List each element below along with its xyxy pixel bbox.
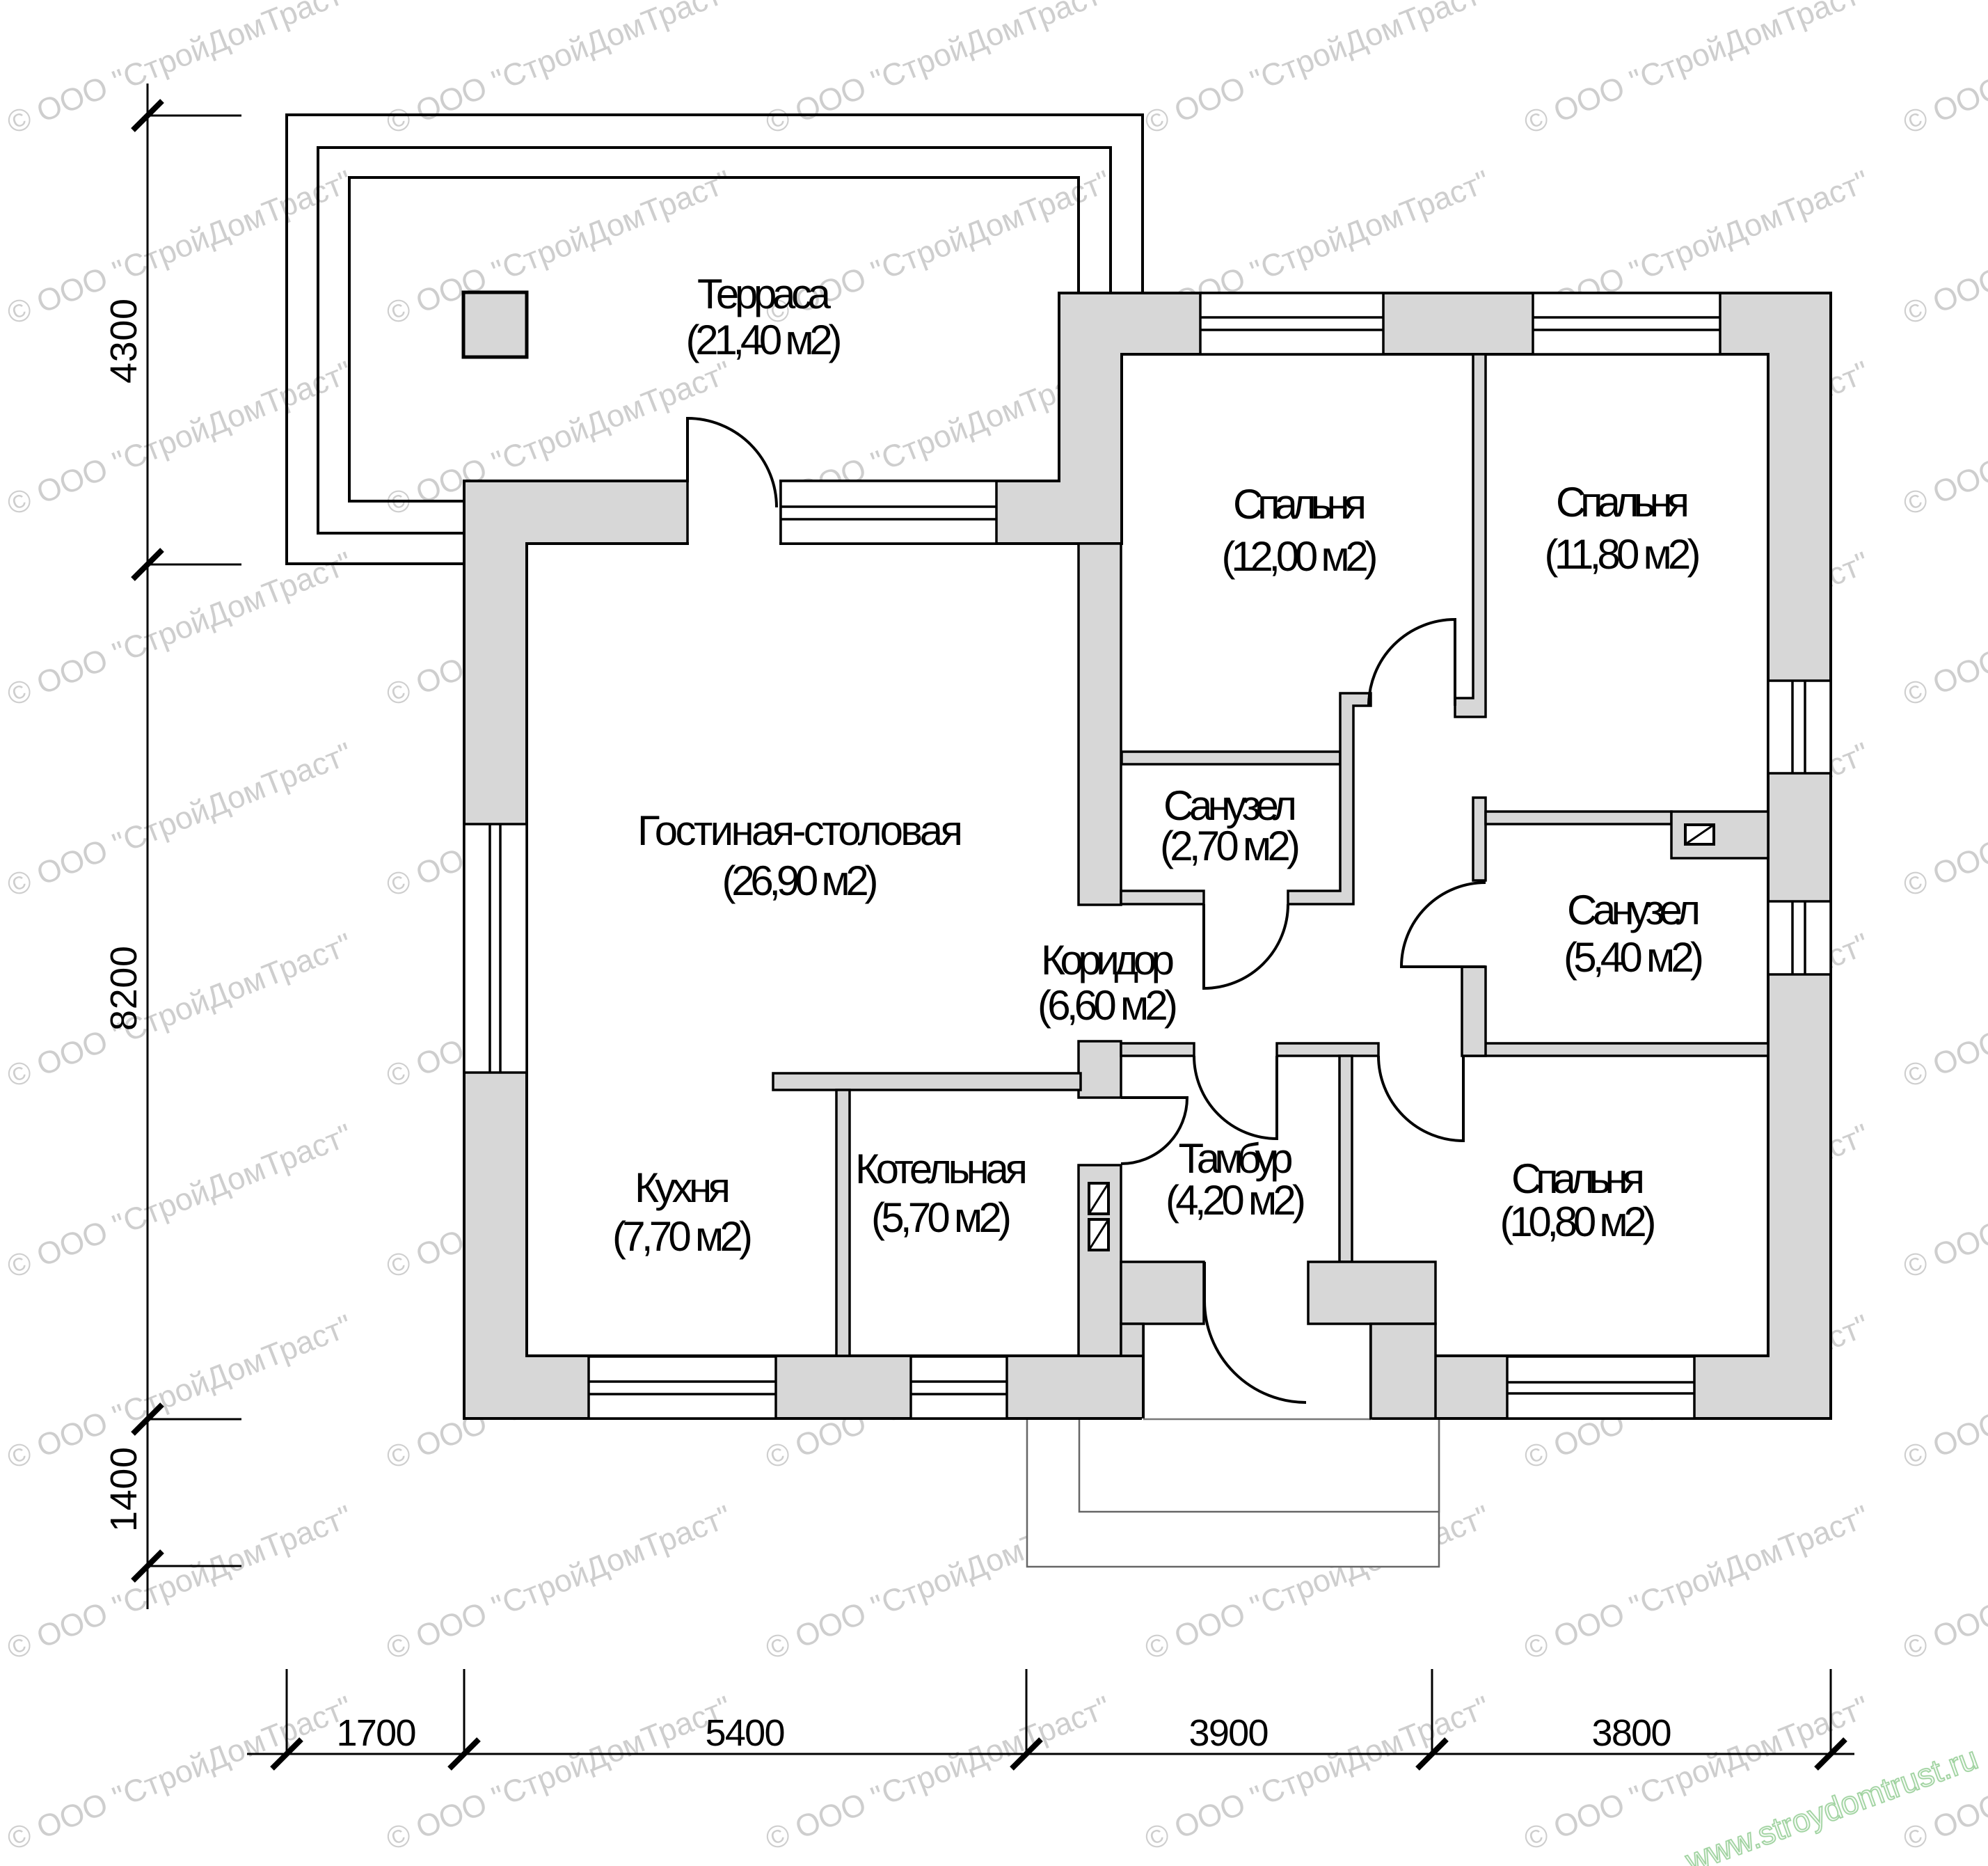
svg-text:(6,60 м2): (6,60 м2) [1037, 982, 1178, 1029]
svg-text:Коридор: Коридор [1041, 937, 1175, 983]
svg-text:(26,90 м2): (26,90 м2) [722, 857, 879, 904]
svg-text:(5,70 м2): (5,70 м2) [871, 1194, 1012, 1241]
svg-text:(21,40 м2): (21,40 м2) [686, 317, 843, 363]
svg-text:1400: 1400 [103, 1447, 145, 1532]
svg-text:5400: 5400 [706, 1712, 786, 1754]
svg-text:1700: 1700 [337, 1712, 417, 1754]
svg-text:(5,40 м2): (5,40 м2) [1564, 934, 1704, 981]
svg-text:(7,70 м2): (7,70 м2) [612, 1213, 753, 1260]
svg-text:(10,80 м2): (10,80 м2) [1500, 1199, 1657, 1245]
svg-text:Терраса: Терраса [697, 271, 832, 317]
svg-text:8200: 8200 [103, 946, 145, 1031]
svg-text:Санузел: Санузел [1567, 887, 1701, 933]
svg-text:Тамбур: Тамбур [1179, 1135, 1294, 1182]
svg-text:Котельная: Котельная [855, 1146, 1028, 1192]
svg-text:Спальня: Спальня [1233, 481, 1367, 528]
svg-text:Гостиная-столовая: Гостиная-столовая [637, 807, 963, 854]
svg-text:Кухня: Кухня [635, 1164, 731, 1211]
svg-text:(11,80 м2): (11,80 м2) [1545, 531, 1701, 578]
svg-text:3800: 3800 [1592, 1712, 1672, 1754]
svg-text:3900: 3900 [1189, 1712, 1269, 1754]
svg-text:(2,70 м2): (2,70 м2) [1160, 823, 1301, 869]
svg-text:(12,00 м2): (12,00 м2) [1222, 533, 1378, 580]
svg-text:Санузел: Санузел [1163, 782, 1297, 829]
svg-text:4300: 4300 [103, 299, 145, 384]
svg-text:(4,20 м2): (4,20 м2) [1166, 1177, 1306, 1224]
svg-text:Спальня: Спальня [1511, 1155, 1645, 1202]
svg-text:Спальня: Спальня [1556, 479, 1689, 525]
